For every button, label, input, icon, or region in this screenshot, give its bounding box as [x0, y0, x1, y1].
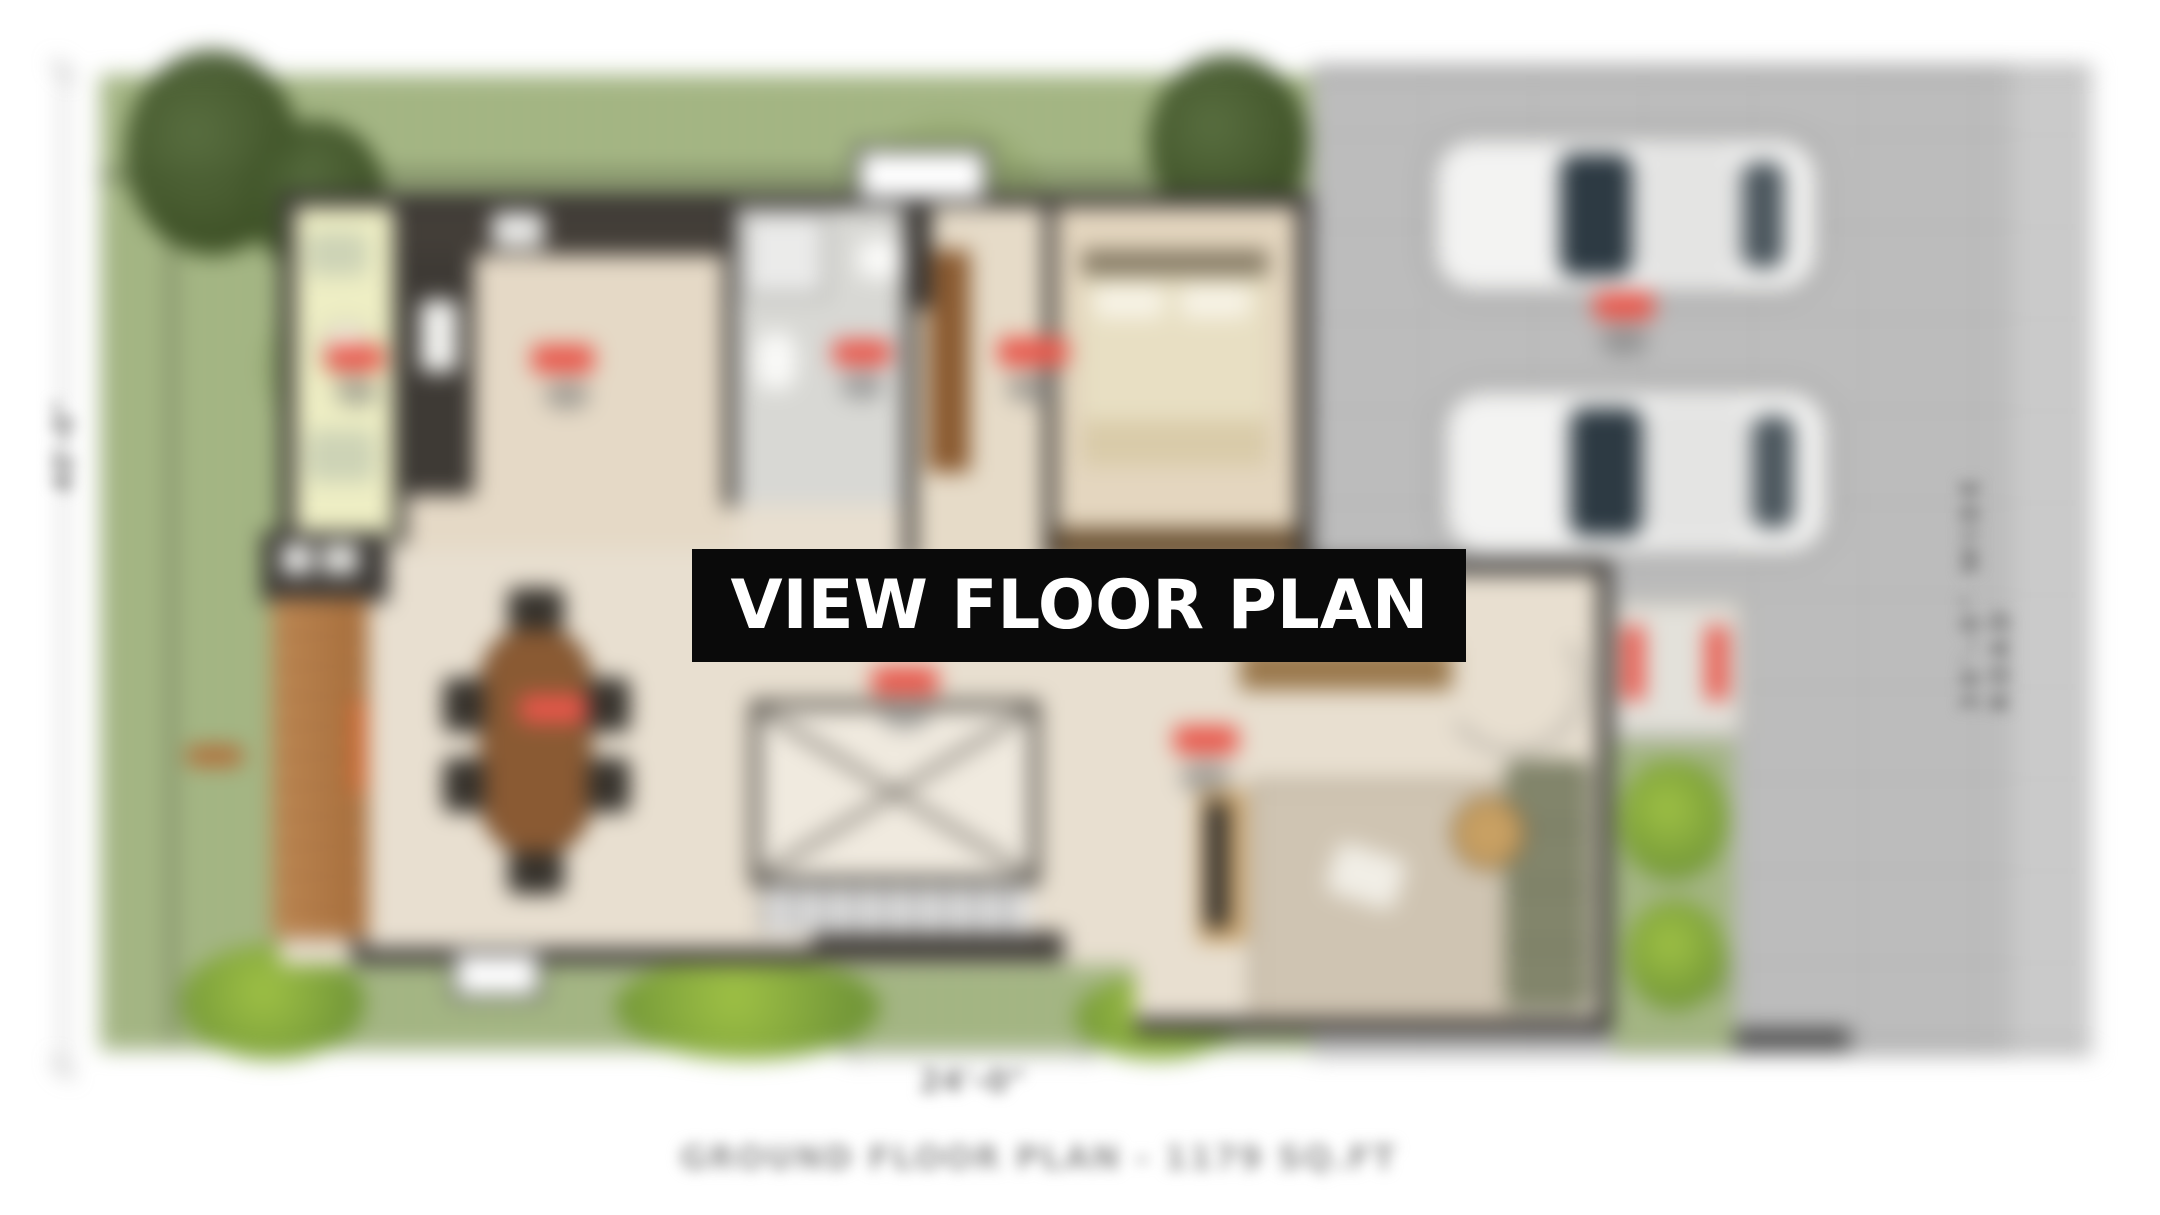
dimension-label-left: 40'-0": [47, 392, 80, 502]
view-floor-plan-button[interactable]: VIEW FLOOR PLAN: [692, 549, 1466, 662]
road-name-label: 30'-0" WIDE ROAD: [1956, 392, 2016, 712]
screenshot-root: 30'-0" WIDE ROAD 40'-0" 24'-0" GROUND FL…: [0, 0, 2160, 1215]
view-floor-plan-button-label: VIEW FLOOR PLAN: [730, 566, 1428, 645]
dimension-label-bottom: 24'-0": [912, 1062, 1032, 1100]
plan-caption: GROUND FLOOR PLAN - 1179 SQ.FT: [680, 1138, 1380, 1177]
